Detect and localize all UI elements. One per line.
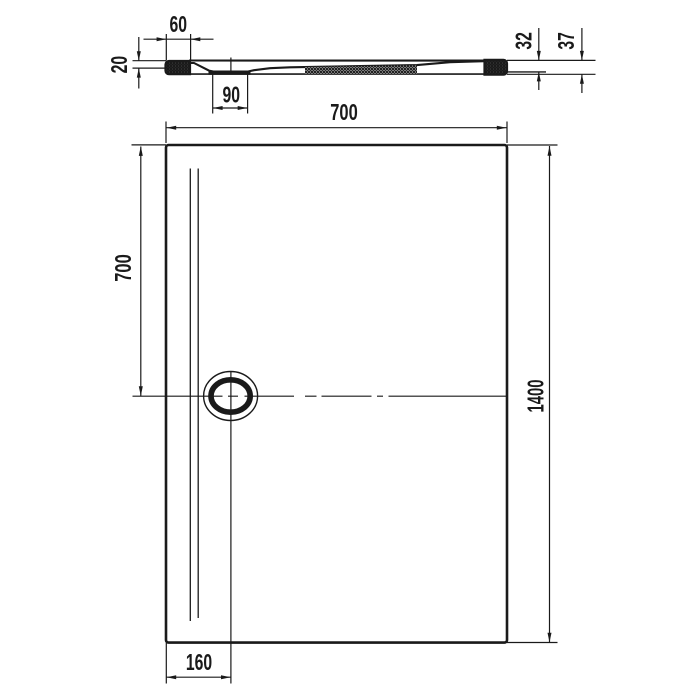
svg-text:90: 90 [223,82,241,108]
svg-text:60: 60 [170,12,188,38]
svg-text:37: 37 [554,32,580,50]
svg-text:700: 700 [330,100,357,125]
svg-text:700: 700 [111,254,136,281]
svg-text:1400: 1400 [523,379,549,412]
svg-text:160: 160 [186,650,212,676]
svg-text:32: 32 [512,32,538,50]
svg-text:20: 20 [107,56,133,74]
